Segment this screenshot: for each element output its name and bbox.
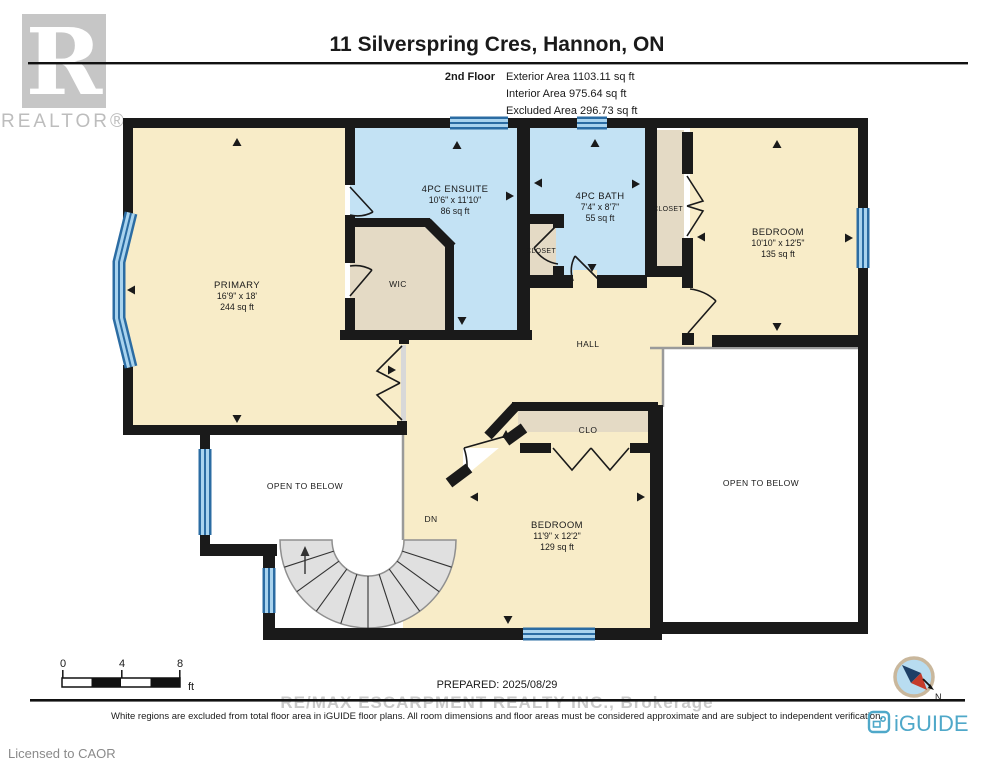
svg-text:55 sq ft: 55 sq ft [586, 213, 615, 223]
scale-tick-4: 4 [119, 658, 125, 670]
svg-text:BEDROOM: BEDROOM [752, 227, 804, 238]
licensed-text: Licensed to CAOR [8, 746, 116, 761]
floor-stats: 2nd Floor Exterior Area 1103.11 sq ft In… [445, 71, 638, 117]
scale-tick-0: 0 [60, 658, 66, 670]
svg-text:16'9" x 18': 16'9" x 18' [217, 291, 258, 301]
open-below-left-label: OPEN TO BELOW [267, 481, 343, 491]
svg-text:BEDROOM: BEDROOM [531, 520, 583, 531]
stat-excluded: Excluded Area 296.73 sq ft [506, 105, 637, 117]
primary-label: PRIMARY 16'9" x 18' 244 sq ft [214, 280, 260, 312]
svg-text:10'6" x 11'10": 10'6" x 11'10" [429, 195, 482, 205]
scale-tick-8: 8 [177, 658, 183, 670]
svg-text:11'9" x 12'2": 11'9" x 12'2" [533, 531, 581, 541]
compass-icon: N [895, 658, 942, 702]
iguide-logo-text: iGUIDE [894, 711, 969, 736]
scale-unit: ft [188, 681, 194, 693]
stat-exterior: Exterior Area 1103.11 sq ft [506, 71, 635, 83]
iguide-logo: iGUIDE [869, 711, 969, 736]
door-slab [401, 345, 406, 421]
svg-text:244 sq ft: 244 sq ft [220, 302, 254, 312]
floor-label: 2nd Floor [445, 71, 496, 83]
prepared-date: PREPARED: 2025/08/29 [437, 679, 558, 691]
disclaimer-text: White regions are excluded from total fl… [111, 711, 883, 722]
bedroom-closet-label: CLOSET [653, 206, 683, 213]
bath-closet-label: CLOSET [526, 248, 556, 255]
svg-text:7'4" x 8'7": 7'4" x 8'7" [581, 202, 619, 212]
stat-interior: Interior Area 975.64 sq ft [506, 88, 626, 100]
svg-text:129 sq ft: 129 sq ft [540, 542, 574, 552]
svg-text:4PC ENSUITE: 4PC ENSUITE [422, 184, 489, 195]
hall-fill-gap [573, 270, 597, 290]
dn-label: DN [424, 514, 437, 524]
floor-plan-svg: R REALTOR® 11 Silverspring Cres, Hannon,… [0, 0, 995, 768]
svg-text:4PC BATH: 4PC BATH [576, 191, 625, 202]
wic-label: WIC [389, 279, 407, 289]
open-below-right-label: OPEN TO BELOW [723, 478, 799, 488]
floor-plan-page: R REALTOR® 11 Silverspring Cres, Hannon,… [0, 0, 995, 768]
scale-bar: 0 4 8 ft [60, 658, 194, 693]
bedroom-closet-fill [655, 130, 684, 270]
realtor-logo: R REALTOR® [1, 8, 127, 132]
hall-label: HALL [577, 339, 600, 349]
svg-text:135 sq ft: 135 sq ft [761, 249, 795, 259]
page-title: 11 Silverspring Cres, Hannon, ON [330, 33, 665, 56]
hall-fill-nook1 [530, 288, 647, 340]
realtor-logo-text: REALTOR® [1, 111, 127, 132]
svg-text:PRIMARY: PRIMARY [214, 280, 260, 291]
header-divider [28, 62, 968, 64]
brokerage-watermark: RE/MAX ESCARPMENT REALTY INC., Brokerage [280, 693, 713, 712]
svg-text:10'10" x 12'5": 10'10" x 12'5" [751, 238, 804, 248]
svg-text:86 sq ft: 86 sq ft [441, 206, 470, 216]
clo-label: CLO [579, 425, 598, 435]
footer-divider [30, 699, 965, 702]
